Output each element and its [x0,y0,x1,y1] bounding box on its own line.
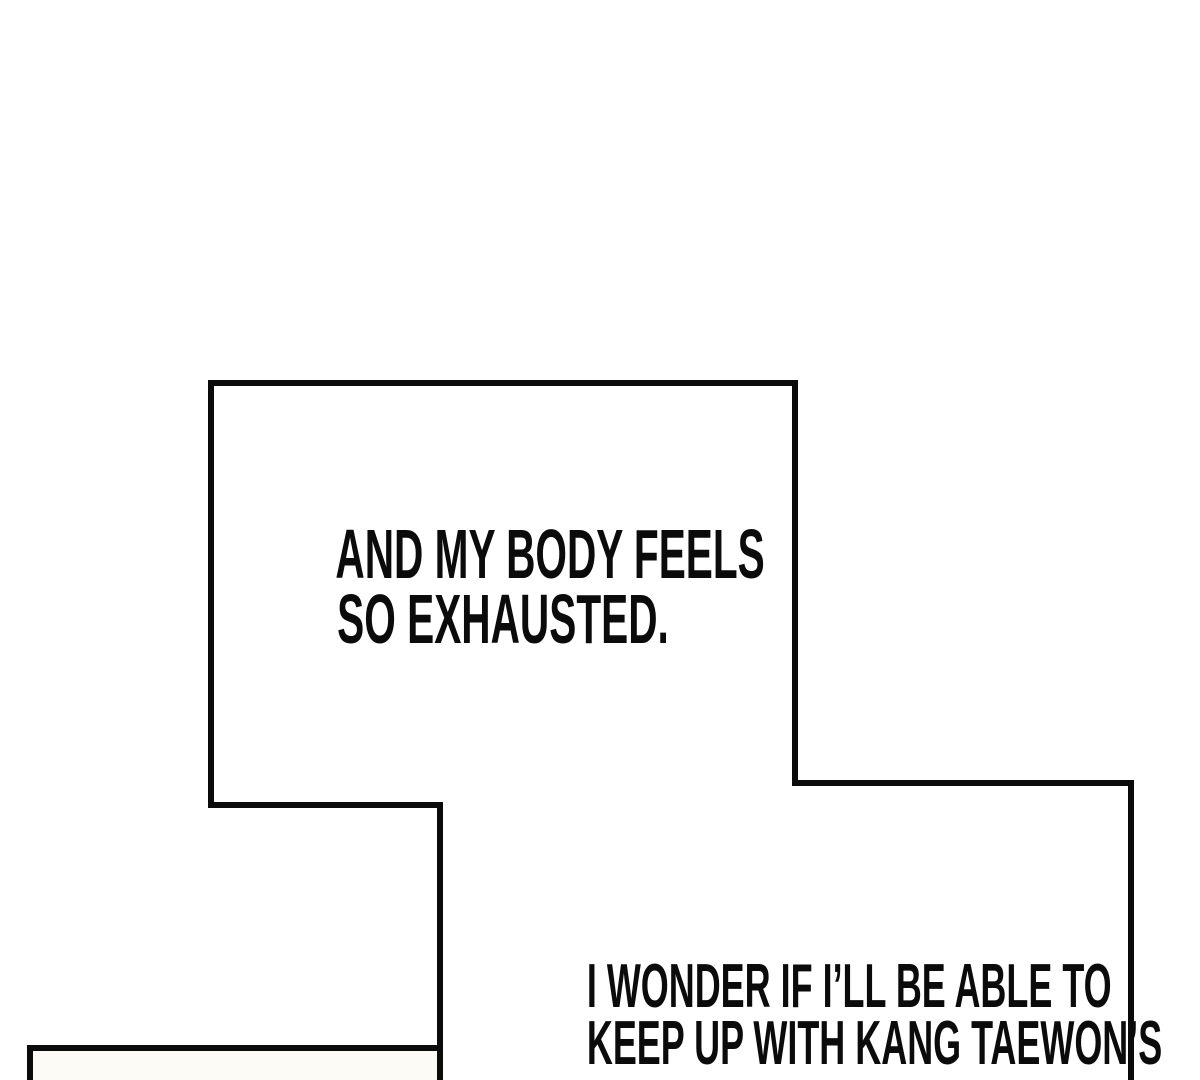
panel-1-border-top [208,380,798,386]
caption-wonder-line-2: KEEP UP WITH KANG TAEWON’S [587,1015,984,1072]
caption-exhausted-line-2: SO EXHAUSTED. [335,587,670,652]
panel-3-border-top [27,1045,443,1051]
comic-page: AND MY BODY FEELS SO EXHAUSTED. I WONDER… [0,0,1200,1080]
panel-3-border-left [27,1045,33,1080]
caption-exhausted-line-1: AND MY BODY FEELS [335,522,670,587]
caption-wonder: I WONDER IF I’LL BE ABLE TO KEEP UP WITH… [587,958,984,1072]
panel-1-border-left [208,380,214,808]
panel-1-border-right [792,380,798,786]
panel-3-interior [33,1051,437,1080]
caption-exhausted: AND MY BODY FEELS SO EXHAUSTED. [335,522,670,652]
panel-1-border-bottom [208,802,443,808]
panel-2-border-left [437,802,443,1080]
caption-wonder-line-1: I WONDER IF I’LL BE ABLE TO [587,958,984,1015]
panel-1-step-border-right [792,780,1134,786]
